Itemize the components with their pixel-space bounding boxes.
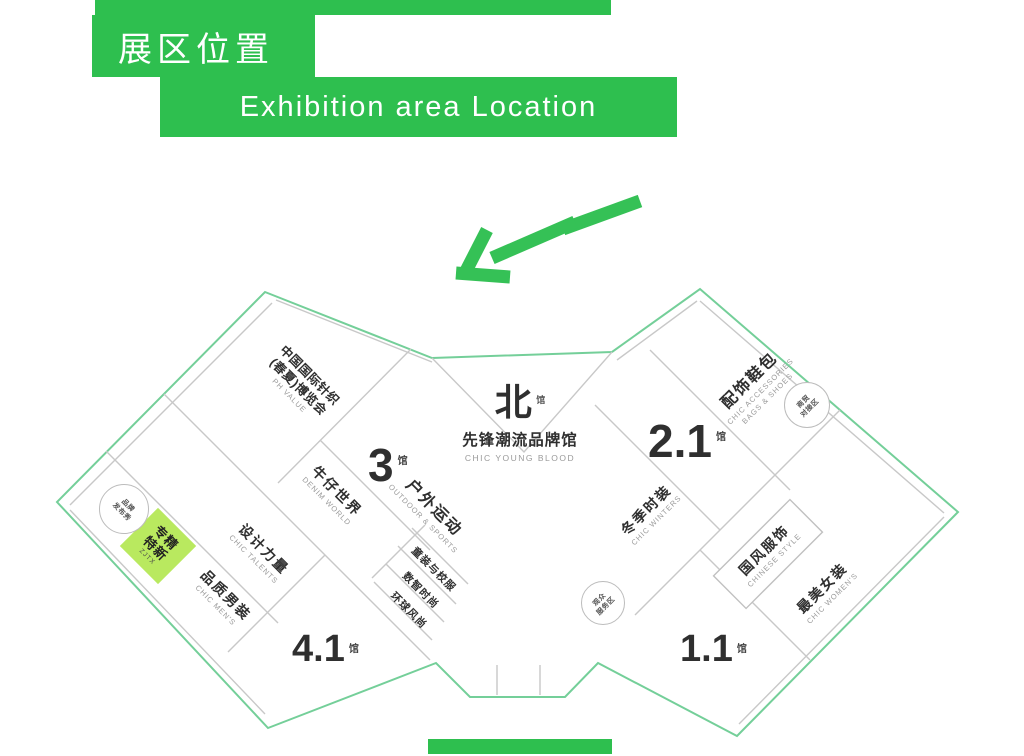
hall-1-1-label: 1.1 馆 [680,630,747,668]
header-title-zh-box: 展区位置 [92,15,315,77]
badge-trade-matching: 商贸 对接区 [784,382,830,428]
hall-3-number: 3 [368,442,394,488]
badge-visitor-service: 观众 服务区 [581,581,625,625]
hall-2-1-suffix: 馆 [716,428,726,443]
header-title-en-box: Exhibition area Location [160,77,677,137]
north-hall-name: 北 [495,382,532,423]
north-hall-label: 北 馆 先锋潮流品牌馆 CHIC YOUNG BLOOD [452,372,588,463]
hall-1-1-number: 1.1 [680,630,733,668]
page-title-en: Exhibition area Location [240,91,598,124]
north-hall-title-zh: 先锋潮流品牌馆 [452,428,588,450]
hall-4-1-label: 4.1 馆 [292,630,359,668]
north-hall-title-en: CHIC YOUNG BLOOD [452,453,588,463]
hall-4-1-number: 4.1 [292,630,345,668]
hall-4-1-suffix: 馆 [349,640,359,655]
hall-2-1-label: 2.1 馆 [648,418,726,464]
header-top-strip [95,0,611,15]
hall-3-suffix: 馆 [398,452,408,467]
badge-brand-show: 品牌 发布秀 [99,484,149,534]
arrow-icon [456,201,640,277]
south-gate-bar [428,739,612,754]
exhibition-location-map: 展区位置 Exhibition area Location 北 馆 先锋潮流品牌… [0,0,1024,756]
site-outline [57,289,958,736]
page-title-zh: 展区位置 [118,22,274,71]
hall-2-1-number: 2.1 [648,418,712,464]
north-hall-suffix: 馆 [536,395,545,405]
hall-1-1-suffix: 馆 [737,640,747,655]
